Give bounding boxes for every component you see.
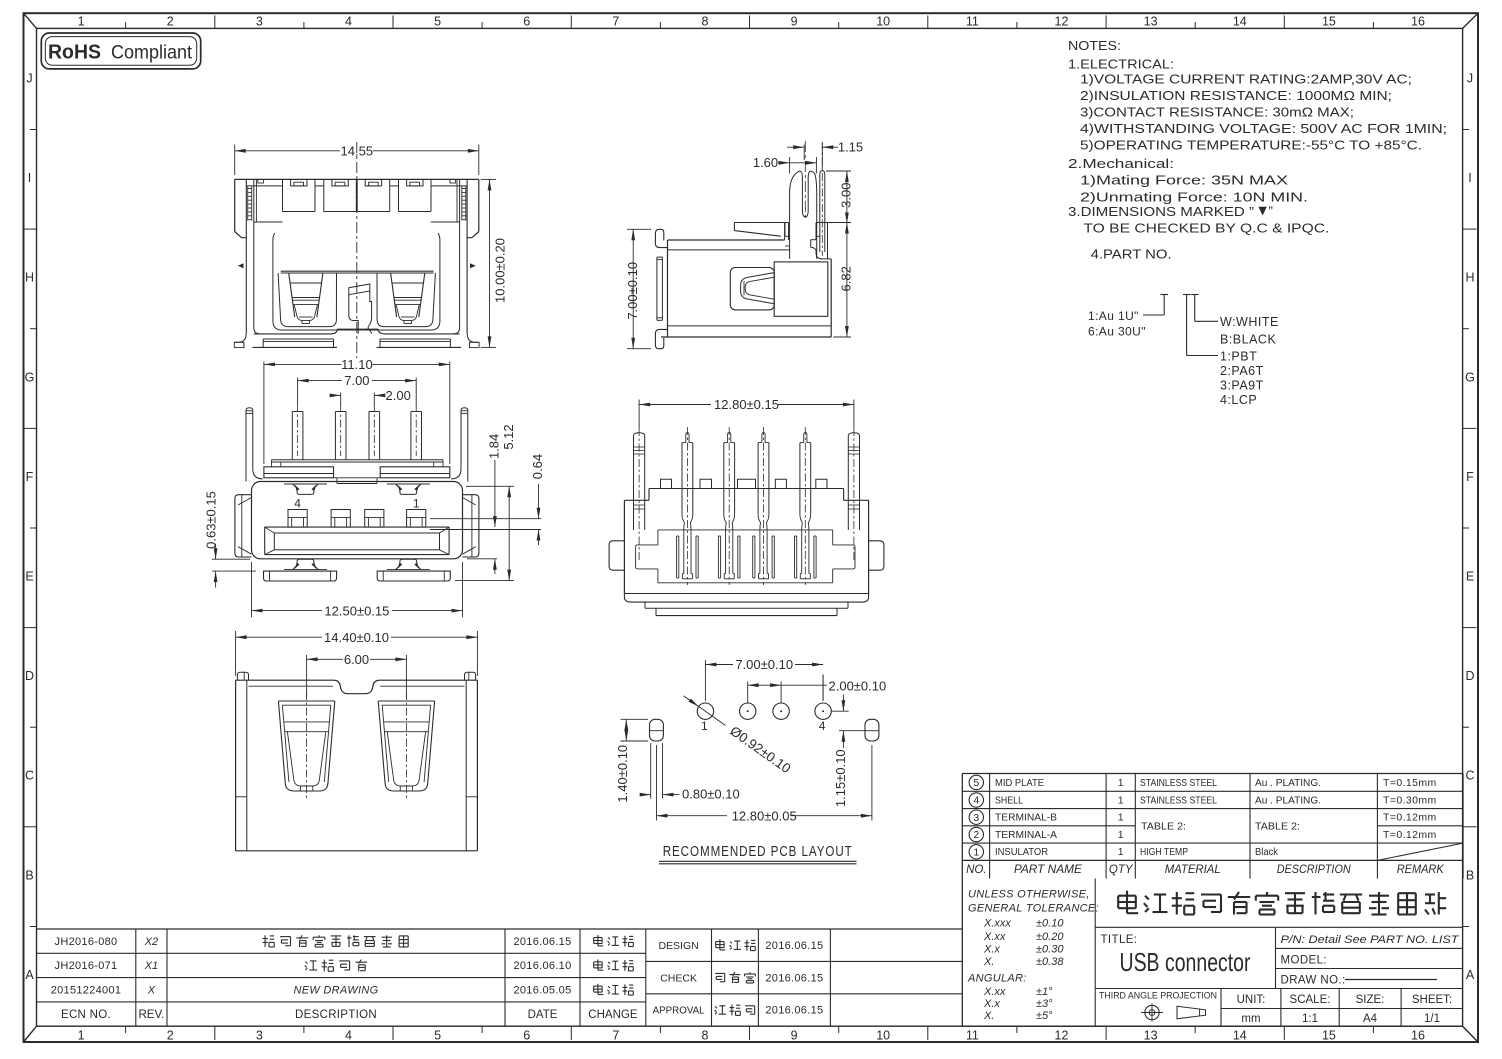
svg-text:X.xx: X.xx	[983, 986, 1006, 998]
svg-text:2.00: 2.00	[386, 388, 411, 403]
svg-text:X.xxx: X.xxx	[983, 918, 1011, 930]
svg-text:0.64: 0.64	[530, 454, 545, 479]
svg-text:B: B	[25, 868, 33, 882]
svg-text:H: H	[25, 271, 34, 285]
svg-text:RoHS: RoHS	[48, 42, 101, 64]
svg-text:14: 14	[1233, 15, 1247, 29]
svg-text:TABLE 2:: TABLE 2:	[1141, 820, 1186, 832]
svg-text:UNLESS OTHERWISE,: UNLESS OTHERWISE,	[968, 889, 1090, 901]
svg-text:1:1: 1:1	[1302, 1013, 1318, 1025]
svg-text:15: 15	[1322, 15, 1336, 29]
svg-text:1.60: 1.60	[753, 155, 778, 170]
svg-text:E: E	[25, 570, 33, 584]
svg-text:DATE: DATE	[528, 1009, 558, 1021]
svg-text:F: F	[1466, 470, 1474, 484]
svg-text:4: 4	[345, 15, 352, 29]
svg-text:REMARK: REMARK	[1397, 864, 1445, 876]
svg-text:G: G	[1465, 370, 1475, 384]
svg-text:3: 3	[973, 812, 979, 824]
svg-text:8: 8	[702, 15, 709, 29]
svg-text:X2: X2	[144, 936, 158, 948]
svg-text:NEW DRAWING: NEW DRAWING	[294, 985, 379, 997]
svg-text:X1: X1	[144, 960, 158, 972]
svg-text:JH2016-071: JH2016-071	[55, 960, 118, 972]
svg-text:STAINLESS STEEL: STAINLESS STEEL	[1140, 777, 1217, 789]
svg-text:14.40±0.10: 14.40±0.10	[324, 630, 389, 645]
svg-text:15: 15	[1322, 1029, 1336, 1043]
svg-text:2.Mechanical:: 2.Mechanical:	[1068, 156, 1174, 171]
svg-text:7.00: 7.00	[344, 373, 369, 388]
svg-text:JH2016-080: JH2016-080	[55, 936, 118, 948]
svg-text:5: 5	[434, 1029, 441, 1043]
svg-text:RECOMMENDED PCB LAYOUT: RECOMMENDED PCB LAYOUT	[663, 843, 853, 860]
svg-text:7: 7	[612, 15, 619, 29]
svg-text:10: 10	[876, 15, 890, 29]
svg-text:0.63±0.15: 0.63±0.15	[203, 491, 218, 549]
svg-text:9: 9	[791, 1029, 798, 1043]
svg-text:MODEL:: MODEL:	[1281, 955, 1328, 967]
svg-text:DESCRIPTION: DESCRIPTION	[295, 1009, 377, 1021]
svg-text:Compliant: Compliant	[111, 42, 193, 64]
svg-text:TABLE 2:: TABLE 2:	[1255, 820, 1300, 832]
svg-text:13: 13	[1144, 1029, 1158, 1043]
svg-text:7.00±0.10: 7.00±0.10	[735, 657, 793, 672]
svg-text:SHELL: SHELL	[995, 794, 1023, 806]
svg-text:0.80±0.10: 0.80±0.10	[682, 787, 740, 802]
svg-text:A: A	[1466, 968, 1475, 982]
svg-text:12.50±0.15: 12.50±0.15	[324, 603, 389, 618]
svg-text:±0.10: ±0.10	[1036, 918, 1064, 930]
svg-text:2016.06.15: 2016.06.15	[765, 940, 823, 952]
svg-text:1)VOLTAGE CURRENT RATING:2AMP,: 1)VOLTAGE CURRENT RATING:2AMP,30V AC;	[1080, 71, 1412, 86]
svg-text:SIZE:: SIZE:	[1356, 994, 1385, 1006]
svg-text:1: 1	[413, 497, 420, 511]
svg-text:GENERAL TOLERANCE:: GENERAL TOLERANCE:	[968, 903, 1099, 915]
svg-text:X.: X.	[983, 1010, 994, 1022]
svg-text:±3°: ±3°	[1036, 998, 1053, 1010]
svg-text:C: C	[25, 769, 34, 783]
svg-text:1: 1	[1118, 777, 1124, 789]
svg-text:I: I	[1468, 171, 1471, 185]
svg-text:A4: A4	[1363, 1013, 1378, 1025]
svg-text:QTY: QTY	[1109, 864, 1134, 876]
svg-text:T=0.15mm: T=0.15mm	[1383, 777, 1437, 789]
svg-text:16: 16	[1411, 15, 1425, 29]
svg-text:MID PLATE: MID PLATE	[995, 777, 1044, 789]
svg-text:DRAW NO.:: DRAW NO.:	[1281, 975, 1346, 987]
svg-text:4: 4	[345, 1029, 352, 1043]
svg-text:UNIT:: UNIT:	[1237, 994, 1266, 1006]
svg-text:Au . PLATING.: Au . PLATING.	[1255, 777, 1321, 789]
svg-text:THIRD ANGLE PROJECTION: THIRD ANGLE PROJECTION	[1099, 990, 1217, 1001]
svg-text:2)Unmating Force: 10N MIN.: 2)Unmating Force: 10N MIN.	[1080, 189, 1308, 204]
svg-text:16: 16	[1411, 1029, 1425, 1043]
svg-text:1/1: 1/1	[1424, 1013, 1440, 1025]
svg-text:DESIGN: DESIGN	[658, 940, 698, 952]
svg-text:D: D	[1465, 669, 1474, 683]
svg-text:5)OPERATING TEMPERATURE:-55°C: 5)OPERATING TEMPERATURE:-55°C TO +85°C.	[1080, 138, 1422, 153]
svg-text:TERMINAL-A: TERMINAL-A	[995, 829, 1057, 841]
svg-text:12: 12	[1055, 15, 1069, 29]
svg-text:11: 11	[966, 1029, 979, 1043]
svg-text:1.84: 1.84	[487, 434, 502, 459]
svg-text:X.xx: X.xx	[983, 931, 1006, 943]
svg-text:INSULATOR: INSULATOR	[995, 846, 1048, 858]
svg-text:CHANGE: CHANGE	[588, 1009, 638, 1021]
svg-text:T=0.12mm: T=0.12mm	[1383, 829, 1437, 841]
svg-text:11.10: 11.10	[341, 357, 373, 372]
svg-text:1.15: 1.15	[838, 140, 863, 155]
svg-text:3.DIMENSIONS MARKED ”: 3.DIMENSIONS MARKED ”	[1068, 204, 1254, 219]
svg-text:5: 5	[973, 777, 979, 789]
svg-text:1: 1	[78, 15, 85, 29]
svg-text:2: 2	[973, 829, 979, 841]
svg-text:”: ”	[1269, 204, 1273, 219]
svg-text:11: 11	[966, 15, 979, 29]
svg-text:4: 4	[294, 497, 301, 511]
svg-text:X.x: X.x	[983, 998, 1000, 1010]
svg-text:X.x: X.x	[983, 944, 1000, 956]
svg-text:3)CONTACT RESISTANCE: 30mΩ MAX: 3)CONTACT RESISTANCE: 30mΩ MAX;	[1080, 105, 1354, 120]
svg-text:1: 1	[78, 1029, 85, 1043]
svg-text:USB connector: USB connector	[1120, 947, 1251, 977]
svg-text:HIGH TEMP: HIGH TEMP	[1140, 846, 1188, 858]
svg-text:±0.20: ±0.20	[1036, 931, 1064, 943]
svg-text:±0.38: ±0.38	[1036, 956, 1064, 968]
svg-text:REV.: REV.	[139, 1009, 165, 1021]
svg-text:MATERIAL: MATERIAL	[1165, 864, 1221, 876]
svg-text:2016.06.15: 2016.06.15	[765, 1005, 823, 1017]
svg-text:4: 4	[973, 795, 979, 807]
svg-text:TERMINAL-B: TERMINAL-B	[995, 812, 1057, 824]
svg-text:1)Mating Force: 35N MAX: 1)Mating Force: 35N MAX	[1080, 173, 1288, 188]
svg-text:6: 6	[523, 15, 530, 29]
svg-text:TO BE CHECKED BY Q.C & IPQC.: TO BE CHECKED BY Q.C & IPQC.	[1083, 221, 1329, 236]
svg-text:4: 4	[819, 719, 826, 733]
svg-text:D: D	[25, 669, 34, 683]
svg-text:14: 14	[1233, 1029, 1247, 1043]
svg-text:3.00: 3.00	[839, 183, 854, 208]
svg-text:2016.05.05: 2016.05.05	[513, 985, 571, 997]
svg-text:2016.06.10: 2016.06.10	[513, 960, 571, 972]
svg-text:W:WHITE: W:WHITE	[1220, 315, 1279, 329]
svg-text:2.00±0.10: 2.00±0.10	[829, 678, 887, 693]
svg-text:4.PART NO.: 4.PART NO.	[1091, 246, 1172, 261]
svg-text:ECN NO.: ECN NO.	[61, 1009, 111, 1021]
svg-text:ANGULAR:: ANGULAR:	[967, 973, 1027, 985]
svg-text:CHECK: CHECK	[660, 972, 697, 984]
svg-text:2)INSULATION RESISTANCE: 1000M: 2)INSULATION RESISTANCE: 1000MΩ MIN;	[1080, 88, 1392, 103]
svg-text:C: C	[1465, 769, 1474, 783]
svg-text:SHEET:: SHEET:	[1412, 994, 1452, 1006]
svg-text:±1°: ±1°	[1036, 986, 1053, 998]
svg-text:5.12: 5.12	[501, 424, 516, 449]
svg-text:6.00: 6.00	[344, 652, 369, 667]
svg-text:1: 1	[1118, 829, 1124, 841]
svg-text:B: B	[1466, 868, 1474, 882]
svg-text:1.ELECTRICAL:: 1.ELECTRICAL:	[1068, 57, 1174, 72]
svg-text:1:PBT: 1:PBT	[1220, 350, 1257, 364]
svg-text:Au . PLATING.: Au . PLATING.	[1255, 794, 1321, 806]
svg-text:20151224001: 20151224001	[51, 985, 122, 997]
svg-text:8: 8	[702, 1029, 709, 1043]
svg-text:4:LCP: 4:LCP	[1220, 393, 1257, 407]
svg-text:5: 5	[434, 15, 441, 29]
svg-text:NOTES:: NOTES:	[1068, 38, 1121, 53]
svg-text:2: 2	[167, 15, 174, 29]
svg-text:X.: X.	[983, 956, 994, 968]
svg-text:mm: mm	[1241, 1013, 1260, 1025]
svg-text:J: J	[1467, 71, 1473, 85]
svg-text:13: 13	[1144, 15, 1158, 29]
svg-text:B:BLACK: B:BLACK	[1220, 333, 1276, 347]
svg-text:1: 1	[701, 719, 708, 733]
svg-text:I: I	[28, 171, 31, 185]
svg-text:10.00±0.20: 10.00±0.20	[493, 238, 508, 303]
svg-text:2016.06.15: 2016.06.15	[513, 936, 571, 948]
svg-text:±5°: ±5°	[1036, 1010, 1053, 1022]
svg-text:7: 7	[612, 1029, 619, 1043]
svg-text:SCALE:: SCALE:	[1290, 994, 1331, 1006]
svg-text:9: 9	[791, 15, 798, 29]
svg-text:G: G	[25, 370, 35, 384]
svg-text:1: 1	[973, 846, 979, 858]
svg-text:J: J	[26, 71, 32, 85]
svg-text:F: F	[26, 470, 34, 484]
svg-text:H: H	[1465, 271, 1474, 285]
svg-text:4)WITHSTANDING VOLTAGE: 500V A: 4)WITHSTANDING VOLTAGE: 500V AC FOR 1MIN…	[1080, 121, 1447, 136]
svg-text:T=0.12mm: T=0.12mm	[1383, 812, 1437, 824]
svg-text:1:Au 1U": 1:Au 1U"	[1088, 309, 1139, 323]
svg-text:TITLE:: TITLE:	[1101, 934, 1138, 946]
svg-text:10: 10	[876, 1029, 890, 1043]
svg-text:DESCRIPTION: DESCRIPTION	[1277, 864, 1352, 876]
svg-text:1: 1	[1118, 812, 1124, 824]
svg-text:12: 12	[1055, 1029, 1069, 1043]
svg-text:1.15±0.10: 1.15±0.10	[833, 749, 848, 807]
svg-text:1: 1	[1118, 846, 1124, 858]
svg-text:3: 3	[256, 1029, 263, 1043]
svg-text:2016.06.15: 2016.06.15	[765, 972, 823, 984]
svg-text:PART NAME: PART NAME	[1014, 864, 1082, 876]
svg-text:12.80±0.15: 12.80±0.15	[714, 397, 779, 412]
svg-text:1.40±0.10: 1.40±0.10	[615, 745, 630, 803]
svg-text:2:PA6T: 2:PA6T	[1220, 364, 1264, 378]
svg-text:12.80±0.05: 12.80±0.05	[732, 809, 797, 824]
svg-text:3: 3	[256, 15, 263, 29]
svg-text:3:PA9T: 3:PA9T	[1220, 379, 1264, 393]
svg-text:T=0.30mm: T=0.30mm	[1383, 794, 1437, 806]
svg-text:Black: Black	[1255, 846, 1279, 858]
svg-text:E: E	[1466, 570, 1474, 584]
svg-text:A: A	[25, 968, 34, 982]
svg-text:2: 2	[167, 1029, 174, 1043]
svg-text:6:Au 30U": 6:Au 30U"	[1088, 325, 1146, 339]
svg-text:7.00±0.10: 7.00±0.10	[625, 262, 640, 320]
svg-text:P/N: Detail See PART NO. LIST: P/N: Detail See PART NO. LIST	[1281, 934, 1460, 946]
svg-text:6.82: 6.82	[839, 266, 854, 291]
svg-text:X: X	[147, 985, 156, 997]
svg-text:1: 1	[1118, 794, 1124, 806]
svg-text:6: 6	[523, 1029, 530, 1043]
svg-text:NO.: NO.	[966, 864, 986, 876]
svg-text:STAINLESS STEEL: STAINLESS STEEL	[1140, 794, 1217, 806]
svg-text:APPROVAL: APPROVAL	[653, 1005, 705, 1017]
svg-text:±0.30: ±0.30	[1036, 944, 1064, 956]
